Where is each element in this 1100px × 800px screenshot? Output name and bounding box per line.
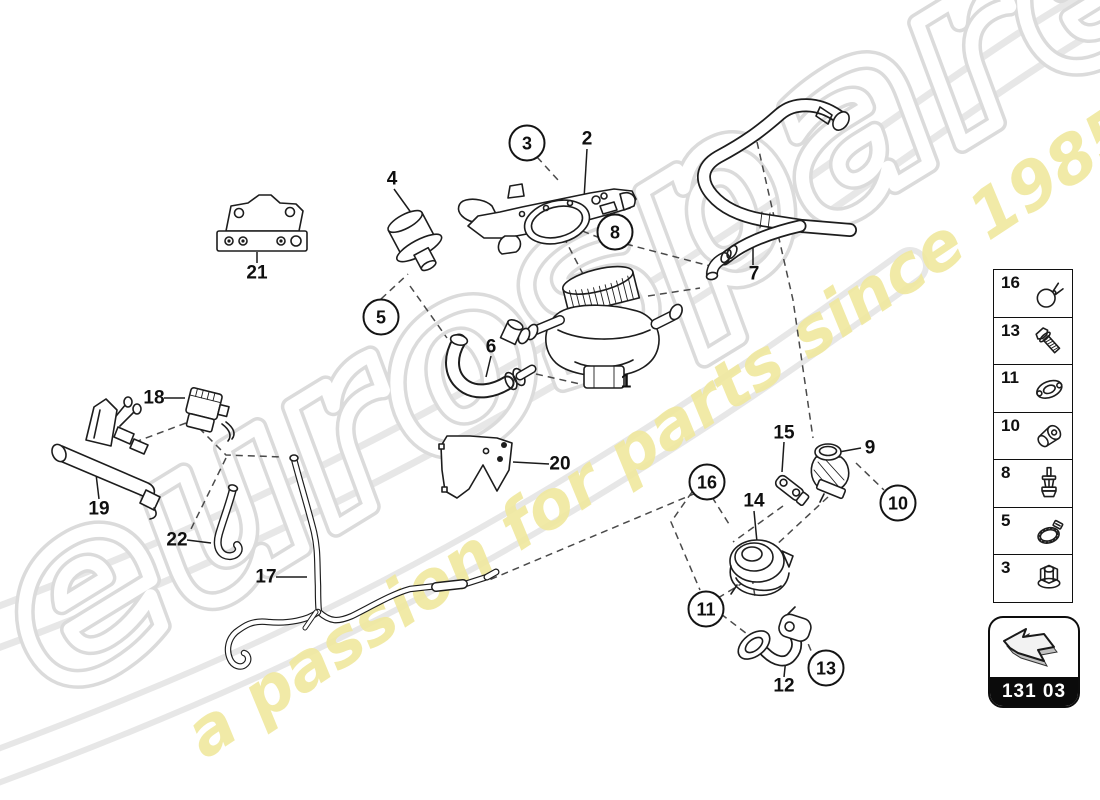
callout-number: 17 [255,567,276,588]
callout-number: 4 [387,169,398,190]
thumb-number: 3 [1001,558,1010,578]
thumb-cell-5[interactable]: 5 [994,508,1072,556]
callout-20[interactable]: 20 [549,455,570,474]
thumb-number: 10 [1001,416,1020,436]
diagram-nav-box[interactable]: 131 03 [988,616,1080,708]
callout-11[interactable]: 11 [688,591,725,628]
callout-number: 13 [816,659,836,677]
callout-9[interactable]: 9 [865,439,876,458]
callout-number: 20 [549,454,570,475]
thumb-cell-16[interactable]: 16 [994,270,1072,318]
callout-21[interactable]: 21 [246,264,267,283]
part-15-bracket [774,474,810,506]
callout-17[interactable]: 17 [255,568,276,587]
callout-19[interactable]: 19 [88,500,109,519]
callout-number: 1 [621,372,632,393]
flange-gasket-icon [1027,368,1071,409]
part-9-valve [811,444,848,502]
part-14-valve [730,540,793,595]
callout-7[interactable]: 7 [749,265,760,284]
callout-number: 22 [166,530,187,551]
callout-number: 14 [743,491,764,512]
callout-number: 10 [888,494,908,512]
sleeve-connector-icon [1027,416,1071,457]
thumb-cell-8[interactable]: 8 [994,460,1072,508]
thumb-cell-13[interactable]: 13 [994,318,1072,366]
callout-13[interactable]: 13 [808,650,845,687]
part-7-hose [704,105,853,280]
callout-22[interactable]: 22 [166,531,187,550]
thumb-number: 8 [1001,463,1010,483]
callout-number: 18 [143,388,164,409]
thumb-cell-11[interactable]: 11 [994,365,1072,413]
callout-14[interactable]: 14 [743,492,764,511]
callout-1[interactable]: 1 [621,373,632,392]
callout-number: 9 [865,438,876,459]
callout-3[interactable]: 3 [509,125,546,162]
callout-number: 16 [697,473,717,491]
parts-diagram-page: eurospares eurospares a passion for part… [0,0,1100,800]
flange-nut-icon [1027,558,1071,599]
callout-number: 5 [376,308,386,326]
callout-number: 21 [246,263,267,284]
part-18-valve [182,387,234,441]
hex-bolt-icon [1027,321,1071,362]
callout-16[interactable]: 16 [689,464,726,501]
thumb-number: 13 [1001,321,1020,341]
back-arrow-icon [994,623,1074,673]
callout-2[interactable]: 2 [582,130,593,149]
callout-number: 11 [696,600,715,618]
callout-15[interactable]: 15 [773,424,794,443]
thumb-number: 5 [1001,511,1010,531]
callout-12[interactable]: 12 [773,677,794,696]
hose-clamp-icon [1027,511,1071,552]
callout-number: 3 [522,134,532,152]
callout-number: 15 [773,423,794,444]
part-22-hose [218,484,239,556]
part-12-pipe [733,607,813,665]
callout-10[interactable]: 10 [880,485,917,522]
callout-18[interactable]: 18 [143,389,164,408]
callout-6[interactable]: 6 [486,338,497,357]
thumb-cell-3[interactable]: 3 [994,555,1072,602]
wire-clamp-icon [1027,273,1071,314]
callout-4[interactable]: 4 [387,170,398,189]
thumb-number: 16 [1001,273,1020,293]
callout-number: 8 [610,223,620,241]
diagram-artwork [0,0,1100,800]
callout-5[interactable]: 5 [363,299,400,336]
callout-number: 6 [486,337,497,358]
callout-8[interactable]: 8 [597,214,634,251]
thumb-cell-10[interactable]: 10 [994,413,1072,461]
part-20-heat-shield [439,436,512,498]
expansion-rivet-icon [1027,463,1071,504]
parts-thumbnail-column: 16 13 11 [993,269,1073,603]
part-4-valve [380,204,453,281]
callout-number: 2 [582,129,593,150]
callout-number: 12 [773,676,794,697]
thumb-number: 11 [1001,368,1019,388]
diagram-code-label: 131 03 [990,677,1078,706]
callout-number: 7 [749,264,760,285]
part-21-bracket [217,195,307,251]
callout-number: 19 [88,499,109,520]
